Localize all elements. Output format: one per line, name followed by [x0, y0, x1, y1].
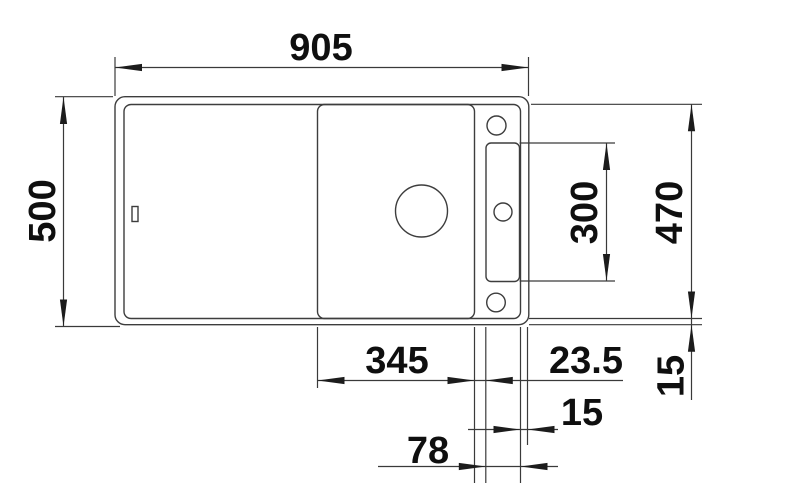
overflow-slot — [132, 207, 138, 222]
arrow-left-icon — [115, 64, 142, 71]
arrow-left-icon — [486, 377, 513, 384]
dimension-overall-width: 905 — [115, 27, 529, 96]
drawing-canvas: 905 500 470 300 15 — [0, 0, 800, 492]
dim-label-23-5: 23.5 — [549, 340, 623, 382]
tap-hole-top — [487, 116, 506, 135]
dim-label-15-bottom: 15 — [561, 392, 603, 434]
dim-label-345: 345 — [365, 340, 428, 382]
dim-label-500: 500 — [22, 179, 64, 242]
dim-label-78: 78 — [407, 430, 449, 472]
arrow-right-icon — [448, 377, 475, 384]
sink-outer-edge — [115, 97, 529, 325]
arrow-up-icon — [688, 325, 695, 352]
tap-hole-middle — [494, 203, 512, 221]
dimension-board-gap: 23.5 — [486, 340, 623, 384]
dim-label-905: 905 — [289, 27, 352, 69]
dim-label-470: 470 — [649, 181, 691, 244]
tap-hole-bottom — [487, 293, 506, 312]
dimension-rail-zone: 78 — [378, 430, 558, 472]
sink-dimension-drawing: 905 500 470 300 15 — [0, 0, 800, 492]
arrow-down-icon — [60, 300, 67, 327]
dimension-recess-length: 300 — [520, 143, 616, 281]
arrow-right-icon — [459, 463, 486, 470]
dim-label-300: 300 — [564, 181, 606, 244]
arrow-right-icon — [502, 64, 529, 71]
sink-inner-rim — [124, 105, 521, 319]
arrow-left-icon — [318, 377, 345, 384]
dimension-overall-depth: 500 — [22, 97, 120, 327]
arrow-left-icon — [521, 463, 548, 470]
arrow-down-icon — [688, 292, 695, 319]
arrow-left-icon — [528, 426, 555, 433]
drain-mark — [396, 185, 448, 237]
sink-body — [115, 97, 529, 325]
accessory-recess — [486, 143, 520, 282]
arrow-down-icon — [603, 254, 610, 281]
arrow-up-icon — [60, 97, 67, 124]
dimension-rim-bottom: 15 — [468, 392, 603, 434]
arrow-up-icon — [603, 143, 610, 170]
arrow-right-icon — [494, 426, 521, 433]
arrow-up-icon — [688, 104, 695, 131]
dim-label-15-right: 15 — [651, 355, 693, 397]
